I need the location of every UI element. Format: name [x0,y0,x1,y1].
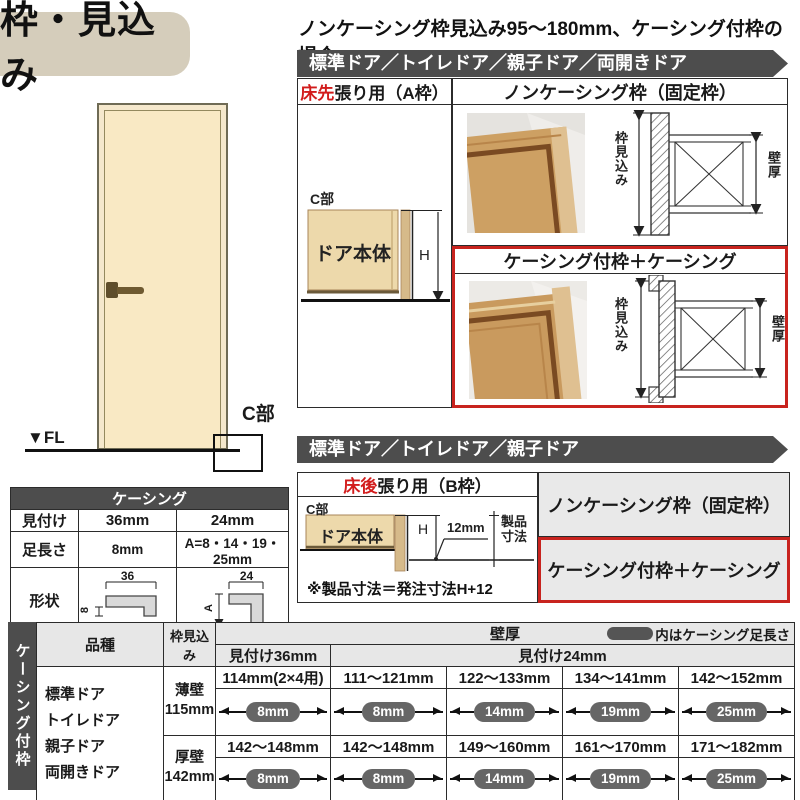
spec-pill-cell: 8mm [331,689,447,736]
casing-wall-label: 壁厚 [768,315,787,343]
page-title: 枠・見込み [0,12,190,76]
b-frame-panel: 床後張り用（B枠） C部 ドア本体 H 12mm 製品 寸法 ※製品寸法＝発注寸… [297,472,538,603]
casing-leg-pill: 25mm [706,702,767,722]
noncasing-section-drawing [631,109,765,239]
spec-header-wall: 壁厚 内はケーシング足長さ [216,623,795,645]
spec-table: 品種 枠見込み 壁厚 内はケーシング足長さ 見付け36mm 見付け24mm 標準… [36,622,795,800]
spec-depth-thin-type: 薄壁 [164,682,215,701]
a-frame-header-rest: 張り用（A枠） [334,79,448,104]
casing-leg-24: A=8・14・19・25mm [177,532,289,568]
b-frame-header-red: 床後 [343,472,377,497]
casing-header: ケーシング付枠＋ケーシング [455,249,785,274]
spec-kind-parent-child: 親子ドア [45,734,163,760]
b-frame-product-dim-label-2: 寸法 [501,526,527,545]
casing-panel: ケーシング付枠＋ケーシング 枠見込み [452,246,788,408]
spec-range: 142～148mm [331,736,447,758]
casing-row-face-label: 見付け [11,510,79,532]
b-frame-header: 床後張り用（B枠） [298,473,537,497]
c-part-callout-box [213,434,263,472]
catalog-page: 枠・見込み ノンケーシング枠見込み95～180mm、ケーシング付枠の場合 ▼FL… [0,0,800,800]
casing-shape-24-leg: A [202,604,214,612]
spec-pill-cell: 25mm [679,758,795,800]
b-frame-gap-label: 12mm [447,520,485,535]
spec-legend-text: 内はケーシング足長さ [655,624,790,644]
spec-range: 142～152mm [679,667,795,689]
casing-leg-pill: 8mm [246,702,300,722]
noncasing-depth-label: 枠見込み [611,131,630,187]
casing-leg-pill: 19mm [590,702,651,722]
door-leaf [104,110,221,448]
spec-depth-thick: 厚壁 142mm [164,736,216,800]
casing-shape-36: 36 8 [82,572,174,630]
spec-range: 142～148mm [216,736,331,758]
spec-pill-cell: 19mm [563,689,679,736]
casing-leg-36: 8mm [79,532,177,568]
b-frame-h-label: H [418,521,428,537]
spec-pill-cell: 25mm [679,689,795,736]
spec-range: 171～182mm [679,736,795,758]
casing-leg-pill: 8mm [362,769,416,789]
casing-dimension-table: ケーシング 見付け 36mm 24mm 足長さ 8mm A=8・14・19・25… [10,487,289,634]
casing-section-drawing [633,275,769,403]
casing-photo [469,281,587,399]
noncasing-header: ノンケーシング枠（固定枠） [453,79,787,105]
casing-diagram: 枠見込み 壁厚 [611,275,787,403]
spec-range: 111～121mm [331,667,447,689]
spec-range: 122～133mm [447,667,563,689]
door-illustration [97,103,228,450]
casing-leg-pill: 14mm [474,702,535,722]
spec-side-label: ケーシング付枠 [8,622,36,790]
noncasing-photo [467,113,585,233]
section1-door-types-bar: 標準ドア／トイレドア／親子ドア／両開きドア [297,50,788,77]
casing-shape-24-width: 24 [207,569,287,583]
spec-side-label-text: ケーシング付枠 [12,643,33,769]
spec-kinds-cell: 標準ドア トイレドア 親子ドア 両開きドア [37,667,164,800]
casing-row-leg-label: 足長さ [11,532,79,568]
a-frame-c-label: C部 [310,189,334,209]
spec-pill-cell: 19mm [563,758,679,800]
casing-leg-pill: 8mm [362,702,416,722]
casing-leg-pill: 14mm [474,769,535,789]
floor-level-label: ▼FL [27,428,65,448]
casing-table-title: ケーシング [11,488,289,510]
casing-shape-36-leg: 8 [79,606,91,612]
b-frame-door-body-label: ドア本体 [308,523,394,547]
casing-depth-label: 枠見込み [611,297,630,353]
casing-shape-36-width: 36 [82,569,174,583]
noncasing-wall-label: 壁厚 [764,151,783,179]
a-frame-h-label: H [419,247,430,264]
spec-header-face36: 見付け36mm [216,645,331,667]
spec-pill-cell: 8mm [216,758,331,800]
spec-kind-double: 両開きドア [45,760,163,786]
spec-legend: 内はケーシング足長さ [607,624,790,644]
spec-depth-thick-type: 厚壁 [164,749,215,768]
spec-range: 134～141mm [563,667,679,689]
legend-pill-icon [607,627,653,640]
spec-range: 114mm(2×4用) [216,667,331,689]
spec-depth-thin-value: 115mm [164,701,215,720]
spec-depth-thin: 薄壁 115mm [164,667,216,736]
b-frame-header-rest: 張り用（B枠） [377,472,491,497]
a-frame-door-body-label: ドア本体 [308,239,398,266]
spec-header-depth: 枠見込み [164,623,216,667]
a-frame-panel: 床先張り用（A枠） C部 ドア本体 H [297,78,452,408]
spec-range: 161～170mm [563,736,679,758]
spec-depth-thick-value: 142mm [164,768,215,787]
option-noncasing: ノンケーシング枠（固定枠） [538,472,790,537]
a-frame-header-red: 床先 [300,79,334,104]
c-part-label: C部 [242,399,275,426]
option-casing: ケーシング付枠＋ケーシング [538,537,790,603]
spec-pill-cell: 8mm [216,689,331,736]
spec-pill-cell: 8mm [331,758,447,800]
b-frame-note: ※製品寸法＝発注寸法H+12 [307,578,493,599]
spec-header-face24: 見付け24mm [331,645,795,667]
spec-header-kind: 品種 [37,623,164,667]
b-frame-c-label: C部 [306,499,328,518]
spec-kind-standard: 標準ドア [45,682,163,708]
casing-leg-pill: 8mm [246,769,300,789]
casing-leg-pill: 19mm [590,769,651,789]
floor-line [25,449,240,452]
spec-kind-toilet: トイレドア [45,708,163,734]
casing-face-36: 36mm [79,510,177,532]
spec-pill-cell: 14mm [447,758,563,800]
noncasing-diagram: 枠見込み 壁厚 [611,109,783,239]
casing-face-24: 24mm [177,510,289,532]
a-frame-header: 床先張り用（A枠） [298,79,451,105]
spec-pill-cell: 14mm [447,689,563,736]
casing-shape-24: 24 A [193,572,273,630]
section2-door-types-bar: 標準ドア／トイレドア／親子ドア [297,436,788,463]
spec-range: 149～160mm [447,736,563,758]
a-frame-diagram [298,105,453,335]
casing-leg-pill: 25mm [706,769,767,789]
door-handle-lever [117,287,144,294]
spec-header-wall-text: 壁厚 [490,626,520,643]
noncasing-panel: ノンケーシング枠（固定枠） 枠見込み [452,78,788,246]
